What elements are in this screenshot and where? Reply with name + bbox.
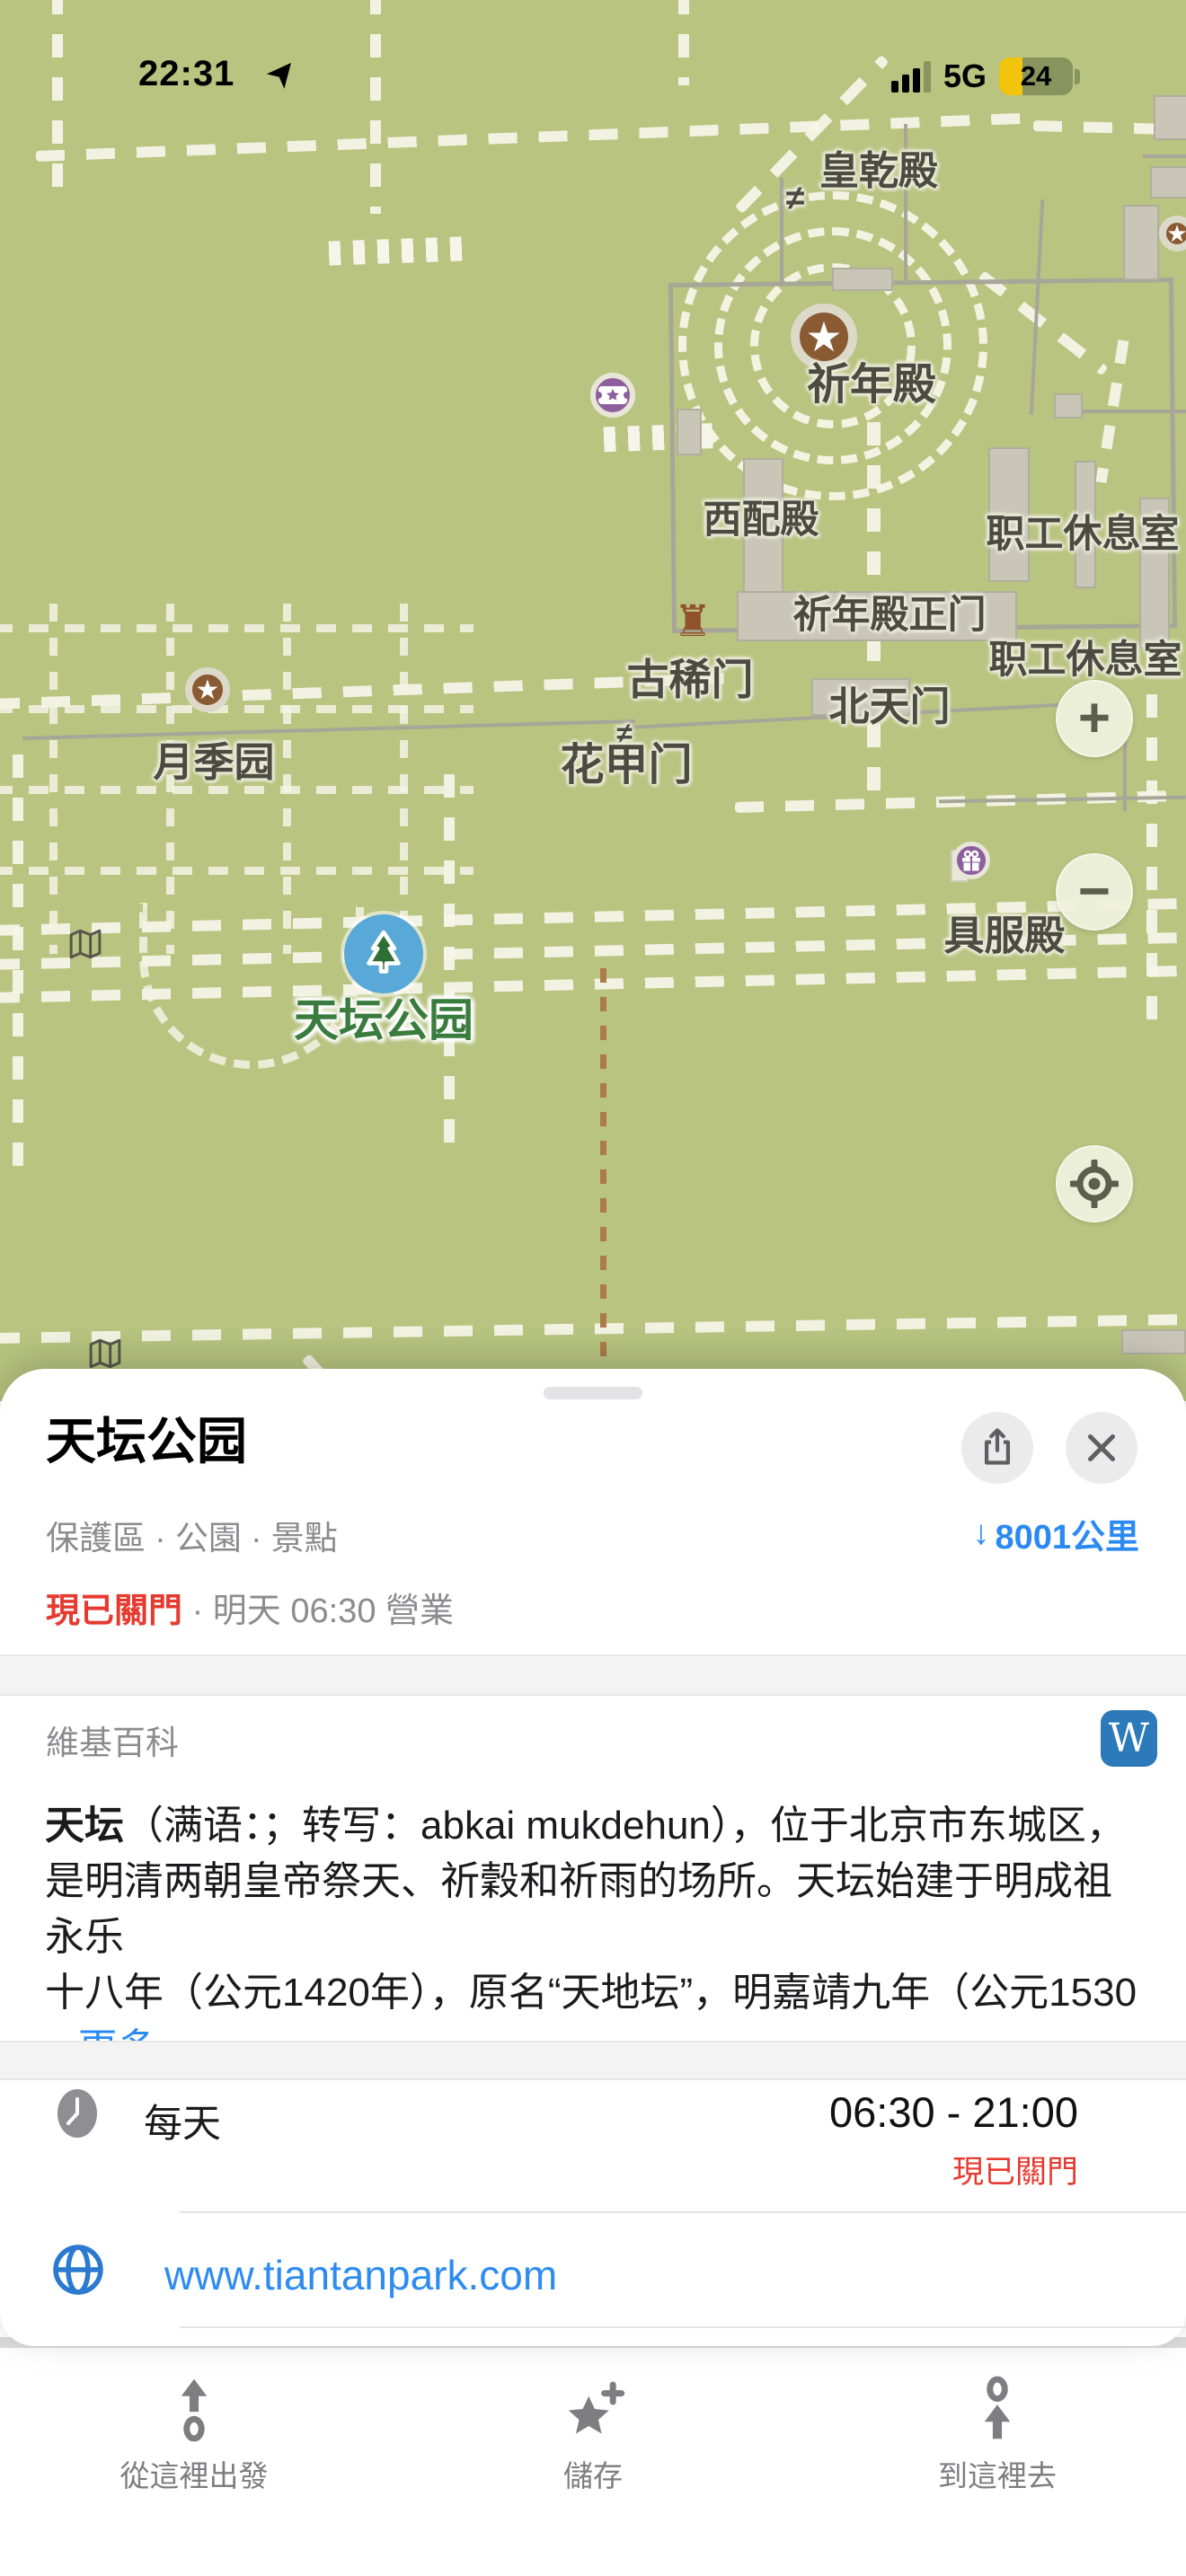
signal-strength-icon bbox=[891, 60, 931, 93]
wiki-line: 天坛（满语：；转写：abkai mukdehun），位于北京市东城区， bbox=[45, 1798, 1150, 1854]
wikipedia-header: 維基百科 bbox=[46, 1716, 179, 1764]
map-wall bbox=[1078, 410, 1186, 413]
toolbar-label: 從這裡出發 bbox=[120, 2452, 269, 2495]
hours-closed-status: 現已關門 bbox=[952, 2147, 1078, 2192]
sheet-drag-handle[interactable] bbox=[544, 1387, 642, 1399]
map-path bbox=[0, 624, 474, 632]
clock-icon bbox=[51, 2087, 103, 2139]
wikipedia-extract: 天坛（满语：；转写：abkai mukdehun），位于北京市东城区， 是明清两… bbox=[45, 1798, 1150, 2077]
map-trail bbox=[600, 968, 606, 1372]
poi-marker-partial[interactable]: ★ bbox=[1159, 216, 1186, 251]
map-path bbox=[283, 604, 291, 954]
place-card-sheet[interactable]: 天坛公园 保護區 · 公園 · 景點 ↓ 8001公里 現已關門 · 明天 06… bbox=[0, 1369, 1186, 2346]
locate-target-icon bbox=[1070, 1160, 1119, 1208]
share-button[interactable] bbox=[961, 1412, 1033, 1484]
down-arrow-icon: ↓ bbox=[972, 1514, 989, 1553]
section-divider-band bbox=[0, 2041, 1186, 2080]
wiki-bold-title: 天坛 bbox=[45, 1804, 124, 1848]
wikipedia-w-letter: W bbox=[1109, 1716, 1149, 1761]
route-to-icon bbox=[963, 2375, 1031, 2443]
distance-value: 8001公里 bbox=[995, 1509, 1139, 1558]
map-path bbox=[0, 673, 728, 710]
map-label-xiuxishi-2: 职工休息室 bbox=[989, 629, 1182, 684]
share-icon bbox=[978, 1426, 1017, 1469]
battery-nub bbox=[1075, 69, 1080, 84]
map-path bbox=[400, 604, 408, 954]
wiki-line-text: （满语：；转写：abkai mukdehun），位于北京市东城区， bbox=[124, 1804, 1126, 1848]
close-icon bbox=[1084, 1430, 1120, 1466]
place-title: 天坛公园 bbox=[46, 1401, 247, 1474]
map-building bbox=[832, 268, 893, 291]
tree-icon bbox=[361, 930, 406, 978]
map-wall bbox=[22, 719, 635, 740]
close-button[interactable] bbox=[1066, 1412, 1137, 1484]
map-label-guximen: 古稀门 bbox=[627, 645, 754, 707]
map-label-jufudian: 具服殿 bbox=[943, 903, 1065, 961]
zoom-out-button[interactable]: − bbox=[1056, 853, 1133, 931]
map-label-zhengmen: 祈年殿正门 bbox=[793, 584, 987, 640]
hours-time-range: 06:30 - 21:00 bbox=[829, 2087, 1078, 2137]
map-label-huajiamen: 花甲门 bbox=[560, 729, 692, 793]
map-path bbox=[0, 705, 474, 713]
row-divider bbox=[180, 2211, 1186, 2213]
map-label-xipeidian: 西配殿 bbox=[704, 489, 819, 544]
gift-icon bbox=[960, 849, 983, 872]
hours-day-label: 每天 bbox=[144, 2093, 221, 2148]
park-map-label: 天坛公园 bbox=[294, 984, 474, 1049]
map-building bbox=[1054, 393, 1083, 419]
distance-badge: ↓ 8001公里 bbox=[972, 1509, 1139, 1558]
directions-to-here-button[interactable]: 到這裡去 bbox=[863, 2375, 1132, 2495]
monument-icon: ♜ bbox=[673, 596, 712, 647]
battery-icon: 24 bbox=[999, 57, 1073, 95]
map-path bbox=[0, 867, 474, 875]
map-canvas[interactable]: ★ ★ ★ 天坛公园 ♜ ≠ ≠ 皇乾殿 祈年殿 西配 bbox=[0, 0, 1186, 1401]
map-label-beitianmen: 北天门 bbox=[828, 674, 950, 732]
dot-separator: · bbox=[192, 1592, 204, 1630]
status-time: 22:31 bbox=[138, 54, 235, 94]
map-label-huangqiandian: 皇乾殿 bbox=[819, 138, 938, 196]
wikipedia-icon[interactable]: W bbox=[1101, 1710, 1157, 1767]
wiki-line: 是明清两朝皇帝祭天、祈穀和祈雨的场所。天坛始建于明成祖永乐 bbox=[45, 1854, 1150, 1965]
map-building bbox=[1121, 1329, 1186, 1354]
open-status-row: 現已關門 · 明天 06:30 營業 bbox=[46, 1583, 454, 1632]
locate-me-button[interactable] bbox=[1056, 1145, 1133, 1222]
map-crosswalk bbox=[329, 236, 463, 265]
network-type: 5G bbox=[943, 57, 987, 95]
plus-icon: + bbox=[1078, 691, 1111, 746]
star-icon: ★ bbox=[1166, 220, 1186, 248]
map-building bbox=[1123, 205, 1159, 280]
yuejiyuan-poi-marker[interactable]: ★ bbox=[185, 667, 230, 712]
globe-icon bbox=[50, 2242, 106, 2298]
map-path bbox=[1146, 651, 1157, 1028]
ticket-icon bbox=[597, 384, 628, 406]
toolbar-label: 儲存 bbox=[563, 2452, 623, 2495]
map-wall bbox=[1143, 154, 1186, 158]
map-path bbox=[444, 774, 455, 1160]
section-divider-band bbox=[0, 1654, 1186, 1696]
row-divider bbox=[180, 2326, 1186, 2328]
save-star-icon bbox=[559, 2375, 627, 2443]
website-link[interactable]: www.tiantanpark.com bbox=[164, 2251, 557, 2299]
battery-percent: 24 bbox=[999, 57, 1073, 95]
ticket-office-poi-marker[interactable] bbox=[590, 373, 635, 418]
minus-icon: − bbox=[1078, 864, 1111, 920]
map-building bbox=[677, 409, 702, 455]
map-icon bbox=[88, 1338, 122, 1369]
map-path bbox=[0, 1314, 1186, 1344]
star-icon: ★ bbox=[196, 675, 220, 706]
map-building bbox=[1150, 166, 1186, 198]
place-category: 保護區 · 公園 · 景點 bbox=[46, 1511, 338, 1559]
status-bar: 22:31 5G 24 bbox=[0, 54, 1186, 117]
gate-symbol: ≠ bbox=[786, 180, 805, 218]
location-services-icon bbox=[266, 57, 296, 92]
directions-from-here-button[interactable]: 從這裡出發 bbox=[59, 2375, 329, 2495]
map-label-qiniandian: 祈年殿 bbox=[807, 348, 936, 411]
zoom-in-button[interactable]: + bbox=[1056, 680, 1133, 757]
route-from-icon bbox=[160, 2375, 228, 2443]
save-button[interactable]: 儲存 bbox=[458, 2375, 728, 2495]
park-pin[interactable] bbox=[344, 914, 423, 993]
opens-tomorrow-text: 明天 06:30 營業 bbox=[213, 1592, 454, 1630]
map-path bbox=[49, 604, 58, 954]
toolbar-label: 到這裡去 bbox=[938, 2452, 1057, 2495]
closed-status: 現已關門 bbox=[46, 1592, 182, 1630]
wiki-line: 十八年（公元1420年），原名“天地坛”，明嘉靖九年（公元1530 bbox=[45, 1965, 1150, 2021]
gift-shop-poi-marker[interactable] bbox=[952, 842, 990, 879]
map-label-yuejiyuan: 月季园 bbox=[153, 729, 274, 788]
bottom-toolbar: 從這裡出發 儲存 到這裡去 bbox=[0, 2348, 1186, 2576]
map-path bbox=[13, 754, 23, 1177]
map-wall bbox=[780, 178, 783, 284]
map-icon bbox=[68, 929, 102, 959]
map-label-xiuxishi-1: 职工休息室 bbox=[987, 503, 1180, 559]
